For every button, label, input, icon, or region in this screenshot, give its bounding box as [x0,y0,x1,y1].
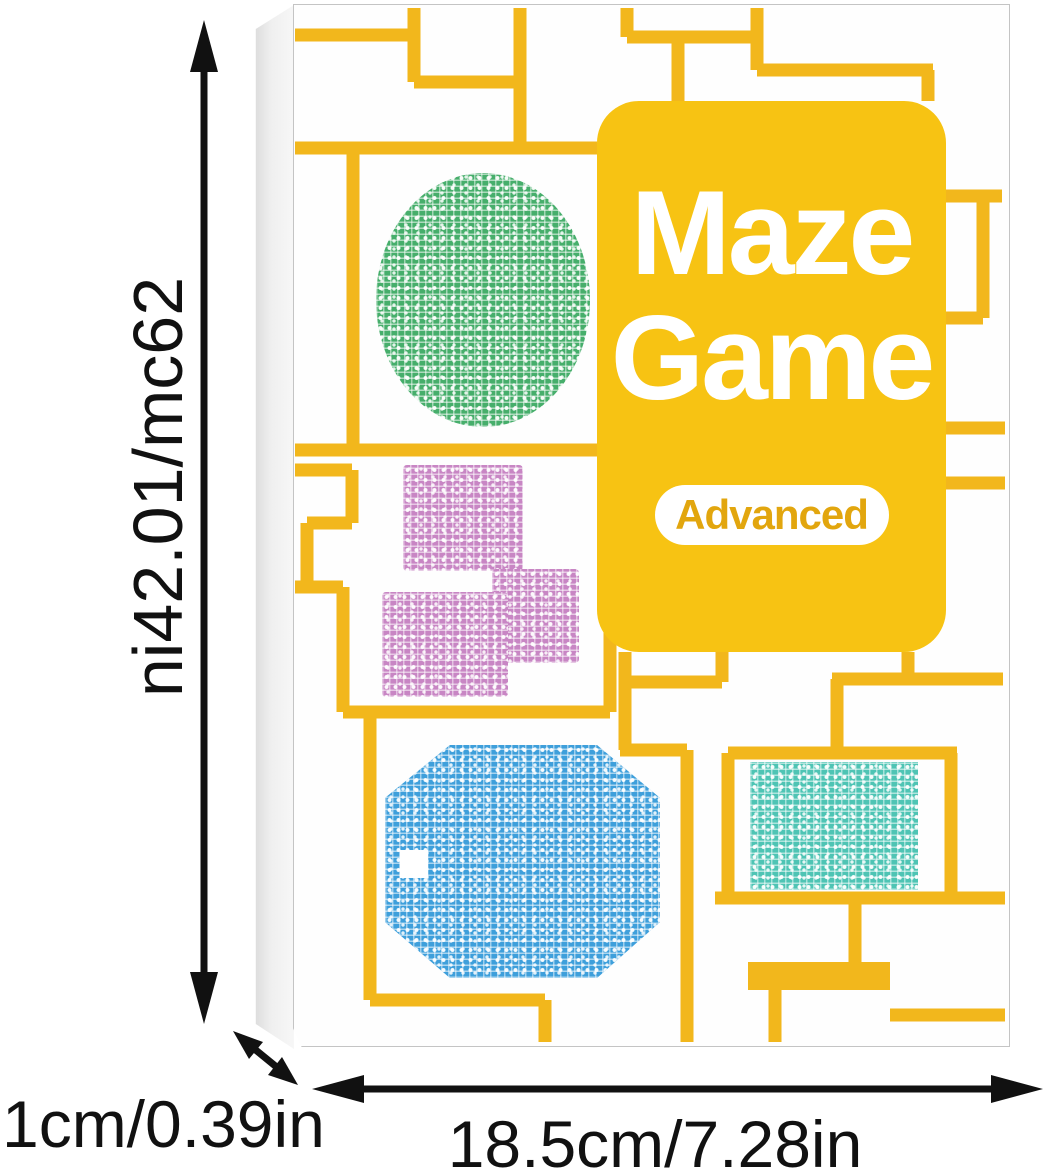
advanced-badge: Advanced [655,485,889,545]
product-dimension-figure: Maze Game Advanced ni42.01/mc62 1cm/0.39… [0,0,1048,1173]
product-title-line2: Game [597,296,946,421]
green-oval-maze [376,173,590,427]
teal-rectangle-maze [750,762,918,890]
advanced-badge-label: Advanced [675,491,868,539]
octagon-maze-entrance [400,850,428,878]
height-dimension-label: ni42.01/mc62 [118,277,198,697]
purple-square-maze-top [403,465,523,571]
title-card: Maze Game Advanced [597,101,946,652]
depth-dimension-label: 1cm/0.39in [2,1086,325,1162]
purple-square-maze-bottom [382,592,508,697]
depth-double-arrow-icon [233,1031,298,1085]
product-title-line1: Maze [597,171,946,296]
width-dimension-label: 18.5cm/7.28in [448,1106,863,1173]
product-title: Maze Game [597,101,946,421]
solid-yellow-brick [748,962,890,990]
width-double-arrow-icon [312,1075,1043,1103]
